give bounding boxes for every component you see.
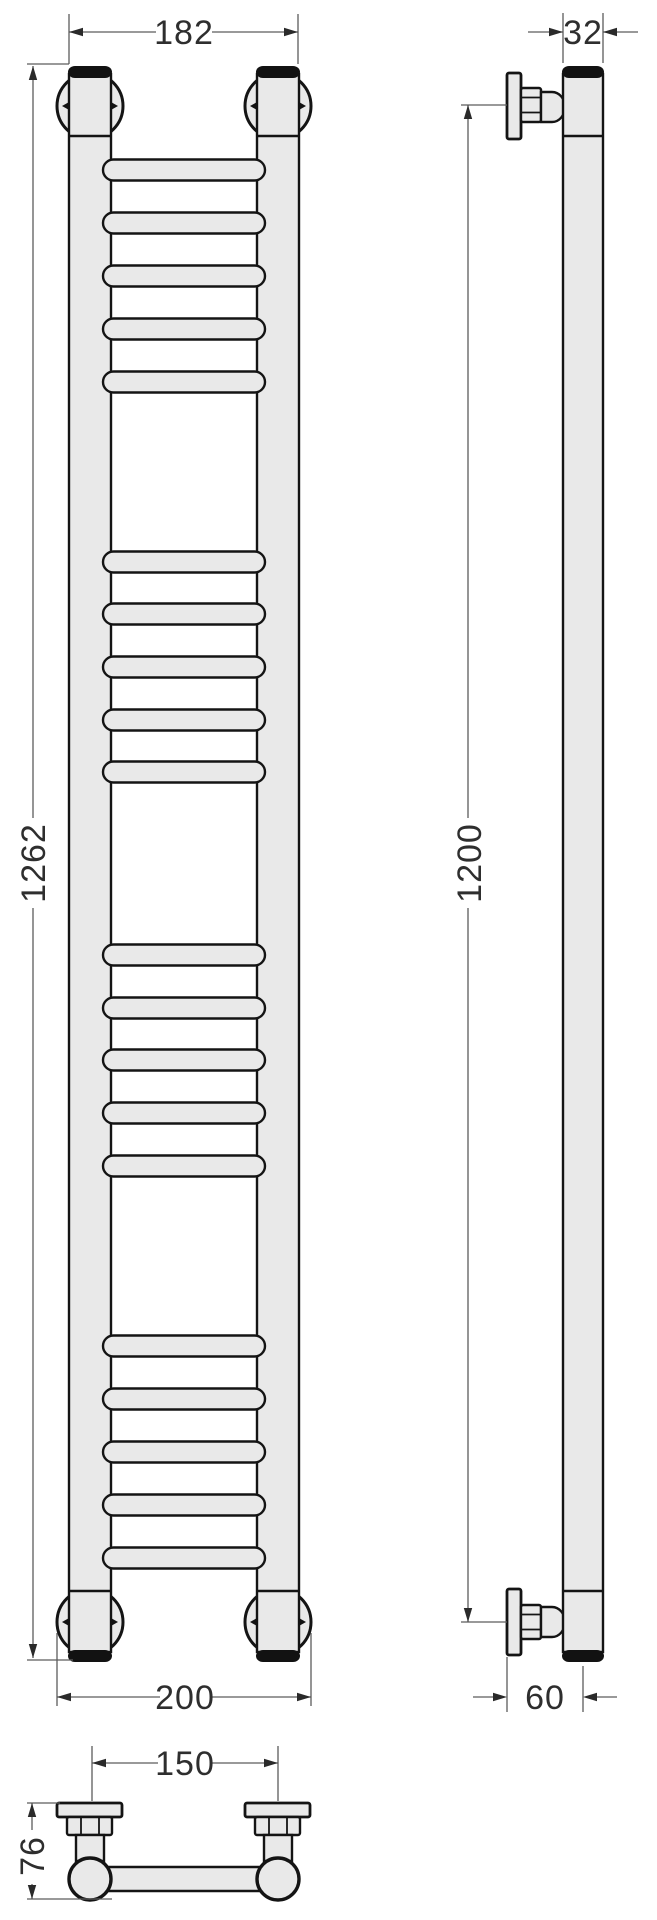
dimension-label-200: 200 [155, 1679, 215, 1717]
dimension-32: 32 [528, 13, 638, 63]
drawing-canvas: 182 1262 200 32 1200 60 15 [0, 0, 657, 1920]
plan-nut-left [67, 1817, 112, 1835]
dimension-1200: 1200 [451, 105, 507, 1622]
rung [103, 160, 265, 181]
rung [103, 266, 265, 287]
plan-tube-left [69, 1858, 111, 1900]
arrowhead-up-icon [28, 1803, 36, 1817]
arrowhead-down-icon [464, 1608, 472, 1622]
dimension-182: 182 [69, 14, 298, 64]
rung [103, 1336, 265, 1357]
dimension-1262: 1262 [15, 64, 73, 1660]
hex-nut-bottom [521, 1605, 541, 1639]
wall-flange-top [507, 73, 521, 139]
arrowhead-left-icon [583, 1693, 597, 1701]
side-tube [563, 74, 603, 1652]
bracket-stem-top [541, 92, 565, 122]
arrowhead-down-icon [28, 1885, 36, 1899]
rung [103, 998, 265, 1019]
dimension-label-60: 60 [525, 1679, 565, 1717]
rung [103, 1548, 265, 1569]
dimension-label-76: 76 [14, 1836, 52, 1876]
post-cap [256, 66, 300, 78]
dimension-150: 150 [92, 1745, 278, 1801]
rung [103, 604, 265, 625]
arrowhead-left-icon [57, 1693, 71, 1701]
plan-tube-right [257, 1858, 299, 1900]
arrowhead-up-icon [464, 105, 472, 119]
arrowhead-up-icon [29, 66, 37, 80]
rung [103, 213, 265, 234]
tube-cap [562, 1650, 604, 1662]
rung [103, 552, 265, 573]
towel-rail-drawing: 182 1262 200 32 1200 60 15 [0, 0, 657, 1920]
rung [103, 372, 265, 393]
post-cap [68, 66, 112, 78]
rung [103, 1442, 265, 1463]
rung [103, 657, 265, 678]
dimension-label-182: 182 [154, 14, 214, 52]
tube-cap [562, 66, 604, 78]
plan-rung-bar [92, 1867, 276, 1891]
rung [103, 1389, 265, 1410]
arrowhead-left-icon [603, 28, 617, 36]
arrowhead-right-icon [297, 1693, 311, 1701]
arrowhead-down-icon [29, 1644, 37, 1658]
rung [103, 1103, 265, 1124]
arrowhead-right-icon [493, 1693, 507, 1701]
post-right [257, 74, 299, 1652]
rung-group [103, 160, 265, 1569]
arrowhead-right-icon [549, 28, 563, 36]
front-view [57, 66, 311, 1662]
rung [103, 1156, 265, 1177]
dimension-label-1262: 1262 [15, 823, 53, 903]
arrowhead-left-icon [69, 28, 83, 36]
plan-flange-left [57, 1803, 122, 1817]
bracket-stem-bottom [541, 1607, 565, 1637]
rung [103, 710, 265, 731]
plan-flange-right [245, 1803, 310, 1817]
arrowhead-left-icon [92, 1759, 106, 1767]
arrowhead-right-icon [264, 1759, 278, 1767]
plan-nut-right [255, 1817, 300, 1835]
rung [103, 1050, 265, 1071]
rung [103, 945, 265, 966]
hex-nut-top [521, 88, 541, 122]
dimension-label-32: 32 [563, 14, 603, 52]
rung [103, 762, 265, 783]
rung [103, 1495, 265, 1516]
arrowhead-right-icon [284, 28, 298, 36]
dimension-60: 60 [473, 1657, 617, 1717]
post-left [69, 74, 111, 1652]
wall-flange-bottom [507, 1589, 521, 1655]
plan-view [57, 1803, 310, 1900]
dimension-label-1200: 1200 [451, 823, 489, 903]
rung [103, 319, 265, 340]
dimension-label-150: 150 [155, 1745, 215, 1783]
post-cap [256, 1650, 300, 1662]
post-cap [68, 1650, 112, 1662]
side-view [507, 66, 604, 1662]
